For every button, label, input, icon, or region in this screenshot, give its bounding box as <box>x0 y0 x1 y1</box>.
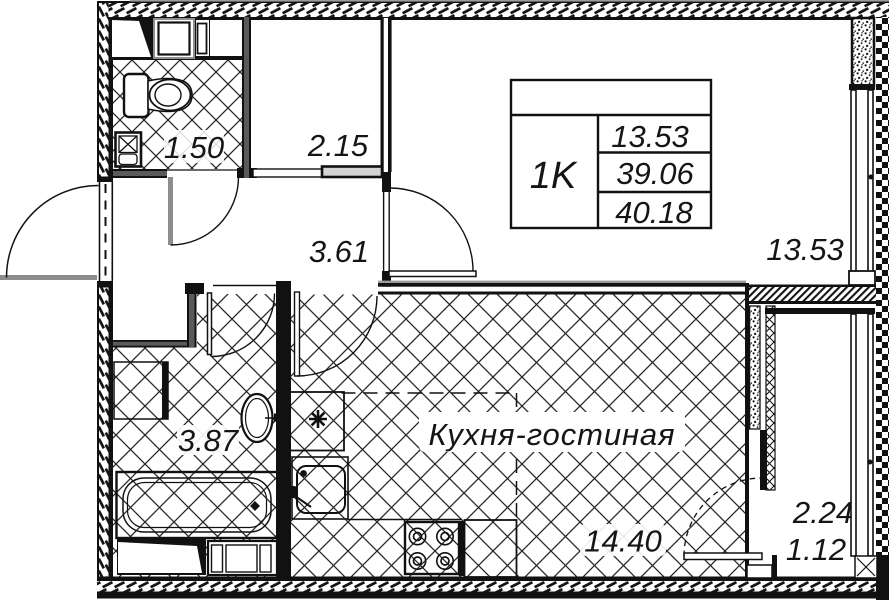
svg-text:1K: 1K <box>530 155 578 197</box>
svg-text:Кухня-гостиная: Кухня-гостиная <box>428 417 675 452</box>
svg-text:39.06: 39.06 <box>616 156 694 191</box>
svg-text:3.87: 3.87 <box>178 423 240 458</box>
svg-text:13.53: 13.53 <box>766 232 844 267</box>
svg-text:3.61: 3.61 <box>309 234 369 269</box>
svg-text:13.53: 13.53 <box>611 119 689 154</box>
svg-text:2.24: 2.24 <box>792 495 853 530</box>
svg-text:14.40: 14.40 <box>584 524 662 559</box>
svg-text:2.15: 2.15 <box>307 128 369 163</box>
svg-text:1.12: 1.12 <box>786 532 846 567</box>
svg-text:40.18: 40.18 <box>615 195 693 230</box>
svg-text:1.50: 1.50 <box>164 130 224 165</box>
